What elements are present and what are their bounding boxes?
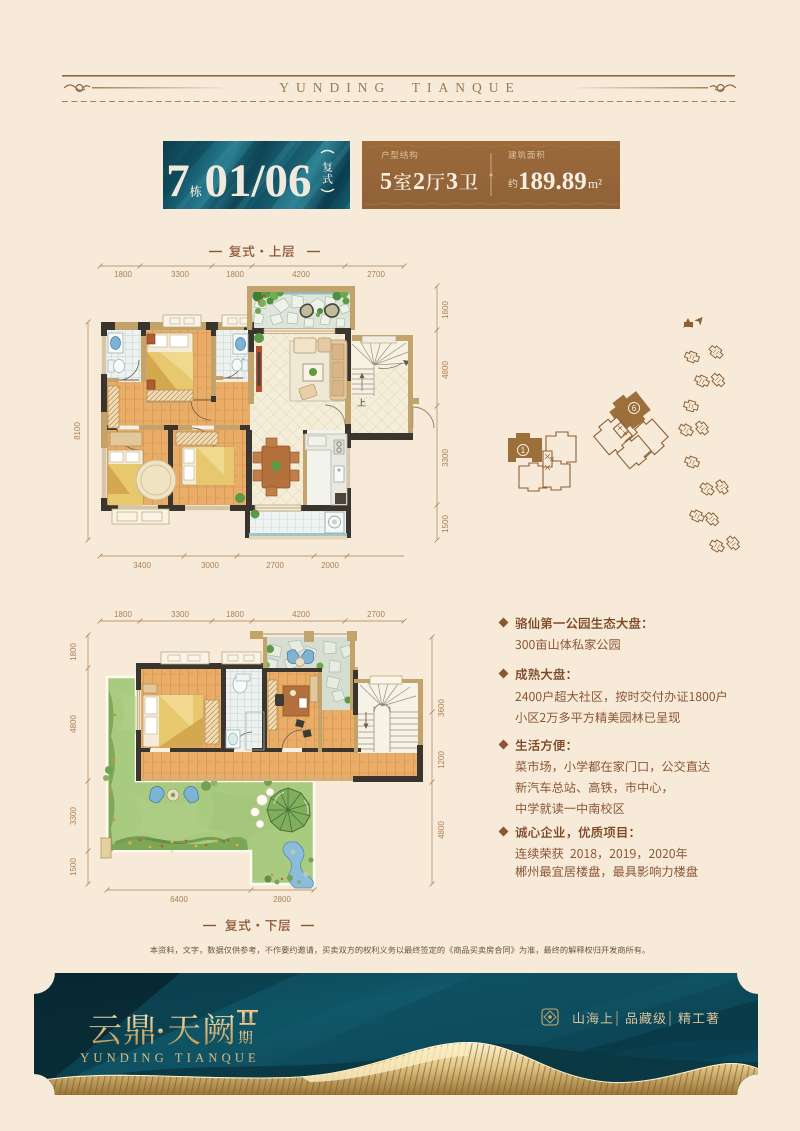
svg-text:YUNDING TIANQUE: YUNDING TIANQUE xyxy=(80,1051,260,1065)
